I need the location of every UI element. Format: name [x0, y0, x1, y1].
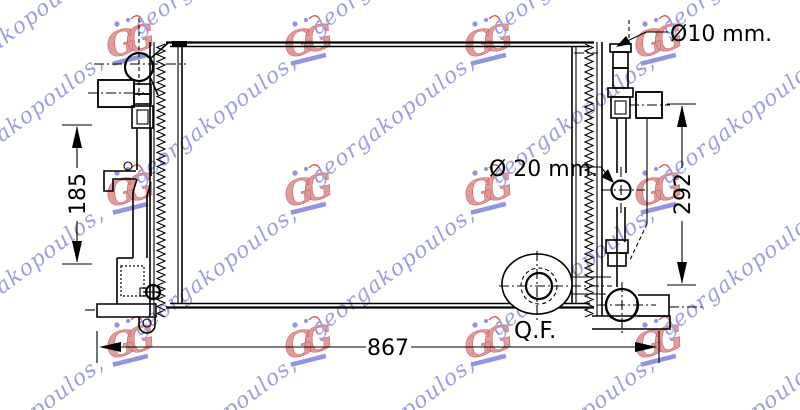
side-pipe-diameter-label: Ø 20 mm. — [489, 157, 598, 182]
label-side-pipe-diameter: Ø 20 mm. — [489, 157, 614, 183]
watermark-unit: GGgeorgakopoulos, — [630, 202, 800, 368]
left-core-zigzag — [157, 44, 165, 317]
watermark-text: georgakopoulos, — [306, 202, 481, 342]
brand-dot — [292, 170, 297, 175]
brand-dot — [114, 322, 119, 327]
watermark-unit: GGgeorgakopoulos, — [102, 50, 302, 216]
watermark-text: georgakopoulos, — [656, 50, 800, 190]
watermark-unit: GGgeorgakopoulos, — [460, 0, 660, 67]
dimension-right-height: 292 — [667, 104, 696, 285]
brand-dot — [642, 322, 647, 327]
watermark-text: georgakopoulos, — [0, 352, 109, 410]
brand-dot — [292, 322, 297, 327]
watermark-unit: GGgeorgakopoulos, — [280, 50, 480, 216]
dimension-width-label: 867 — [367, 336, 409, 361]
watermark-text: georgakopoulos, — [306, 0, 481, 41]
dimension-left-height-label: 185 — [66, 173, 91, 215]
watermark-text: georgakopoulos, — [486, 352, 661, 410]
brand-dot — [472, 21, 477, 26]
watermark-unit: GGgeorgakopoulos, — [280, 0, 480, 67]
watermark-unit: GGgeorgakopoulos, — [0, 202, 109, 368]
brand-dot — [292, 21, 297, 26]
watermark-unit: GGgeorgakopoulos, — [102, 202, 302, 368]
dimension-width: 867 — [97, 331, 659, 363]
brand-dot — [472, 322, 477, 327]
watermark-unit: GGgeorgakopoulos, — [630, 50, 800, 216]
quick-fit-label: Q.F. — [514, 318, 556, 344]
top-pipe-diameter-label: Ø10 mm. — [670, 22, 772, 47]
brand-dot — [472, 170, 477, 175]
watermark-unit: GGgeorgakopoulos, — [0, 352, 109, 410]
radiator-technical-drawing: GGgeorgakopoulos,GGgeorgakopoulos,GGgeor… — [0, 0, 800, 410]
watermark-unit: GGgeorgakopoulos, — [102, 0, 302, 67]
brand-dot — [114, 21, 119, 26]
watermark-text: georgakopoulos, — [656, 352, 800, 410]
watermark-text: georgakopoulos, — [0, 50, 109, 190]
watermark-text: georgakopoulos, — [0, 202, 109, 342]
dimension-right-height-label: 292 — [671, 173, 696, 215]
watermark-unit: GGgeorgakopoulos, — [0, 50, 109, 216]
watermark-text: georgakopoulos, — [656, 202, 800, 342]
watermark-text: georgakopoulos, — [128, 0, 303, 41]
radiator-diagram-page: GGgeorgakopoulos,GGgeorgakopoulos,GGgeor… — [0, 0, 800, 410]
watermark-text: georgakopoulos, — [306, 50, 481, 190]
brand-dot — [642, 21, 647, 26]
watermark-text: georgakopoulos, — [128, 352, 303, 410]
